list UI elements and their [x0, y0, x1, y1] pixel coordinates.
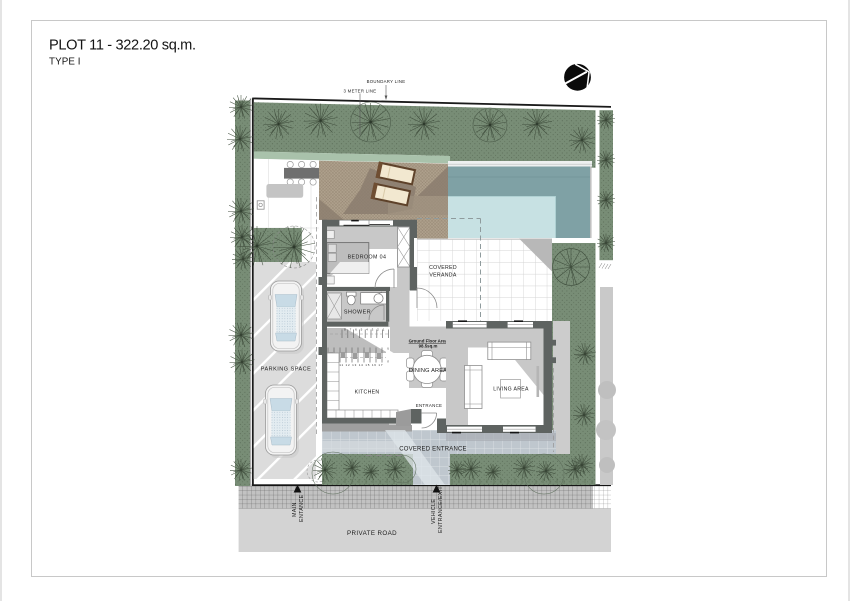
svg-text:LIVING AREA: LIVING AREA [493, 387, 529, 393]
svg-text:SHOWER: SHOWER [344, 310, 371, 316]
svg-text:VERANDA: VERANDA [429, 273, 456, 279]
svg-text:KITCHEN: KITCHEN [355, 390, 380, 396]
svg-text:BOUNDARY LINE: BOUNDARY LINE [367, 79, 406, 84]
svg-text:ENTANCE: ENTANCE [299, 494, 305, 522]
svg-text:VEHICLE: VEHICLE [431, 499, 437, 524]
svg-text:TYPE I: TYPE I [49, 57, 81, 68]
svg-text:PRIVATE ROAD: PRIVATE ROAD [347, 530, 397, 537]
svg-text:8 7 6 5 4 3 2 1: 8 7 6 5 4 3 2 1 [344, 328, 386, 332]
svg-text:DINING AREA: DINING AREA [409, 368, 447, 374]
svg-text:10 11 12 13 14 15 16 17: 10 11 12 13 14 15 16 17 [333, 363, 384, 367]
svg-text:PARKING SPACE: PARKING SPACE [261, 367, 312, 373]
svg-text:BEDROOM 04: BEDROOM 04 [348, 255, 387, 261]
svg-text:COVERED: COVERED [429, 265, 457, 271]
svg-text:3 METER LINE: 3 METER LINE [344, 88, 377, 93]
svg-text:MAIN: MAIN [292, 502, 298, 517]
svg-text:COVERED ENTRANCE: COVERED ENTRANCE [399, 447, 467, 453]
svg-text:ENTRANCE: ENTRANCE [416, 403, 443, 408]
svg-text:98.5sq.m: 98.5sq.m [419, 344, 438, 349]
svg-text:PLOT 11 - 322.20 sq.m.: PLOT 11 - 322.20 sq.m. [49, 38, 196, 54]
svg-text:ENTRANCE/EXIT: ENTRANCE/EXIT [438, 486, 444, 533]
